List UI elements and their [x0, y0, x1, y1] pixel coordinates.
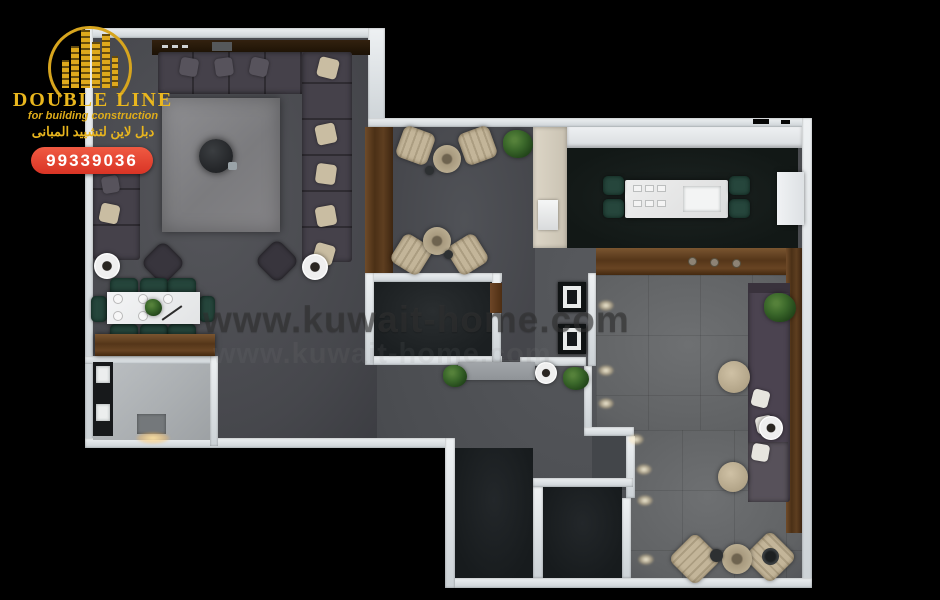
place-mat [645, 200, 654, 207]
building-bar [112, 56, 118, 88]
wall-light [628, 434, 644, 445]
side-table [302, 254, 328, 280]
corridor-wall-5 [626, 436, 635, 498]
building-bar [102, 34, 110, 88]
sofa-pillow [101, 175, 121, 195]
company-name: DOUBLE LINE [10, 89, 176, 112]
dark-room-2-floor [543, 487, 622, 578]
sofa-right [302, 52, 352, 262]
plant-table [759, 416, 783, 440]
ceiling-light [732, 259, 741, 268]
round-pouf [718, 462, 748, 492]
sink [96, 404, 110, 421]
outside-mask [0, 448, 448, 600]
room-b-wall-right [533, 487, 543, 578]
place-mat [657, 185, 666, 192]
building-bar [92, 42, 100, 88]
watermark-text: www.kuwait-home.com [203, 299, 630, 341]
kitchen-chair [603, 199, 624, 218]
wall-light [598, 365, 614, 376]
tea-table [433, 145, 461, 173]
company-tagline: for building construction [10, 110, 176, 122]
place-mat [633, 200, 642, 207]
corner-plant [764, 293, 796, 322]
dining-chair [91, 296, 107, 322]
floor-plan-render: www.kuwait-home.com www.kuwait-home.com … [0, 0, 940, 600]
entry-door-light [136, 432, 170, 444]
phone-badge: 99339036 [31, 147, 153, 174]
decor-bowl [762, 548, 779, 565]
room-c-wall-top [533, 478, 633, 487]
building-bar [62, 60, 69, 88]
room-a-wall-top [365, 273, 502, 282]
ceiling-light [710, 258, 719, 267]
ottoman-tray [228, 162, 237, 170]
console-item-1 [162, 45, 168, 48]
place-mat [645, 185, 654, 192]
corridor-wall-4 [584, 427, 634, 436]
watermark-text-faint: www.kuwait-home.com [213, 338, 552, 371]
kitchen-chair [603, 176, 624, 195]
place-setting [113, 294, 123, 304]
wall-light [638, 554, 654, 565]
floor-plant [503, 130, 533, 158]
console-item-2 [172, 45, 178, 48]
sofa-pillow [248, 56, 269, 77]
side-table [94, 253, 120, 279]
wall-bottom [445, 578, 812, 588]
bath-mat [137, 414, 166, 434]
coffee-table [722, 544, 752, 574]
wall-light [636, 464, 652, 475]
phone-number: 99339036 [46, 151, 138, 171]
place-mat [633, 185, 642, 192]
kitchen-counter-top [567, 127, 802, 148]
place-setting [113, 311, 123, 321]
wall-top-middle [368, 118, 812, 127]
sofa-pillow [214, 57, 234, 77]
company-name-arabic: دبل لاين لتشييد المبانى [10, 124, 176, 140]
wall-top-left [85, 28, 385, 38]
sink [96, 366, 110, 383]
ceiling-light [688, 257, 697, 266]
console-item-3 [182, 45, 188, 48]
place-mat [657, 200, 666, 207]
family-sofa-armrest [748, 283, 790, 293]
building-bar [81, 30, 90, 88]
wall-left-bottom-section [445, 438, 455, 588]
coffee-machine [538, 200, 558, 230]
kitchen-chair [729, 176, 750, 195]
wall-light [598, 398, 614, 409]
side-stool [710, 549, 723, 562]
sideboard [95, 334, 215, 356]
room-c-wall-right [622, 498, 631, 578]
sofa-pillow [314, 122, 338, 146]
sofa-pillow [751, 443, 771, 463]
floor-plant [563, 367, 589, 390]
wall-light [637, 495, 653, 506]
wall-vent [753, 119, 769, 124]
side-stool [425, 166, 434, 175]
place-setting [163, 294, 173, 304]
table-plant [145, 299, 162, 316]
round-pouf [718, 361, 750, 393]
hall-wood-floor [365, 127, 393, 273]
side-stool [444, 250, 453, 259]
wall-vent [781, 120, 790, 124]
kitchen-chair [729, 199, 750, 218]
console-tray [212, 42, 232, 51]
sofa-pillow [314, 204, 337, 227]
kitchen-cabinet-right [777, 172, 804, 225]
dark-room-1-floor [455, 448, 533, 578]
building-bar [71, 46, 79, 88]
sofa-pillow [315, 163, 338, 186]
wall-notch [368, 28, 385, 127]
serving-tray [683, 186, 721, 212]
sofa-pillow [98, 202, 121, 225]
sofa-pillow [179, 57, 200, 78]
